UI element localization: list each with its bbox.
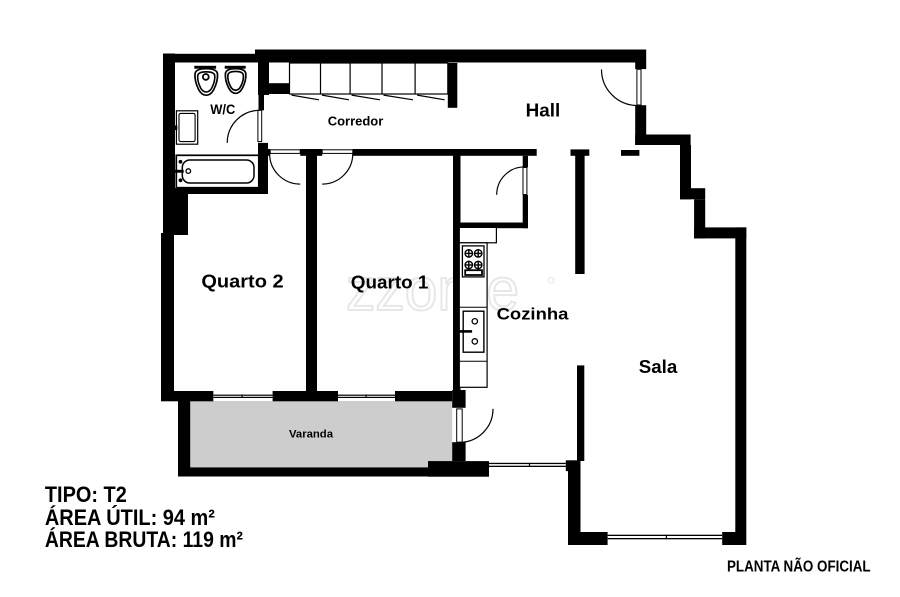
svg-text:Hall: Hall [526,100,561,120]
svg-text:PLANTA NÃO OFICIAL: PLANTA NÃO OFICIAL [727,558,871,576]
svg-text:Quarto 2: Quarto 2 [201,271,283,291]
svg-text:Sala: Sala [639,357,679,377]
svg-text:W/C: W/C [210,102,235,117]
svg-text:Cozinha: Cozinha [497,304,569,323]
svg-text:Varanda: Varanda [289,428,334,440]
svg-text:Corredor: Corredor [328,113,384,128]
svg-text:Quarto 1: Quarto 1 [351,272,429,292]
svg-text:TIPO: T2: TIPO: T2 [45,482,127,507]
svg-text:ÁREA BRUTA: 119 m²: ÁREA BRUTA: 119 m² [45,527,243,552]
